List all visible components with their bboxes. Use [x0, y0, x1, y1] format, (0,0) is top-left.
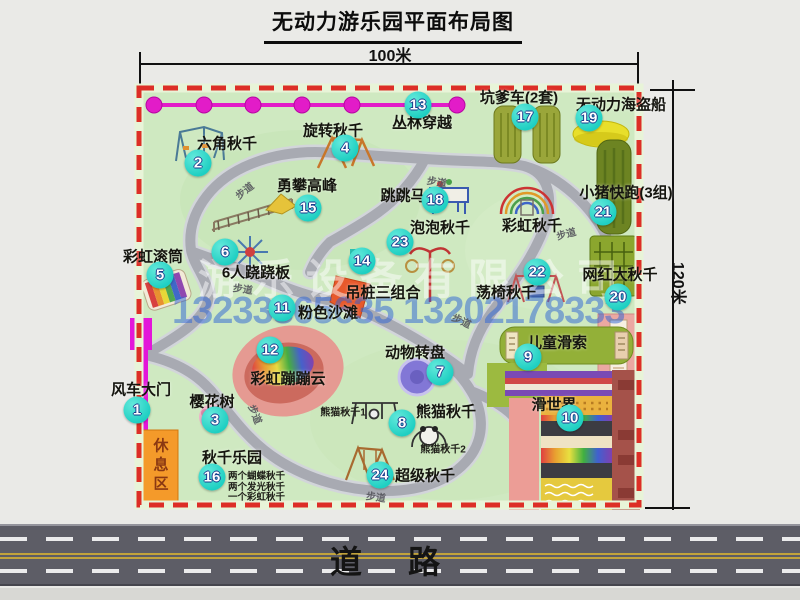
attraction-badge-18: 18	[422, 187, 449, 214]
attraction-label-2: 六角秋千	[197, 133, 257, 154]
attraction-label-15: 勇攀高峰	[277, 175, 337, 196]
attraction-badge-17: 17	[512, 104, 539, 131]
footer-strip	[0, 588, 800, 600]
attraction-badge-15: 15	[295, 195, 322, 222]
extra-label-4: 休息区	[150, 438, 171, 495]
extra-label-1: 彩虹秋千	[502, 215, 562, 236]
attraction-badge-3: 3	[202, 407, 229, 434]
walkway-label-6: 步道	[450, 309, 474, 331]
attraction-badge-14: 14	[349, 248, 376, 275]
attraction-badge-24: 24	[367, 462, 394, 489]
attraction-badge-10: 10	[557, 405, 584, 432]
walkway-label-5: 步道	[245, 402, 266, 426]
road-label: 道路	[330, 537, 486, 583]
road: 道路	[0, 524, 800, 586]
attraction-badge-5: 5	[147, 262, 174, 289]
attraction-badge-23: 23	[387, 229, 414, 256]
extra-label-3: 熊猫秋千2	[420, 441, 466, 456]
attraction-label-21: 小猪快跑(3组)	[579, 182, 672, 203]
attraction-badge-13: 13	[405, 92, 432, 119]
attraction-badge-8: 8	[389, 410, 416, 437]
attraction-badge-9: 9	[515, 344, 542, 371]
labels-overlay: 风车大门1六角秋千2樱花树3旋转秋千4彩虹滚筒56人跷跷板6动物转盘7熊猫秋千8…	[0, 0, 800, 600]
walkway-label-4: 步道	[232, 279, 254, 297]
attraction-label-23: 泡泡秋千	[410, 217, 470, 238]
attraction-label-14: 吊桩三组合	[345, 282, 420, 303]
walkway-label-7: 步道	[365, 487, 387, 505]
attraction-badge-12: 12	[257, 337, 284, 364]
attraction-badge-19: 19	[576, 105, 603, 132]
walkway-label-1: 步道	[232, 178, 257, 202]
attraction-label-8: 熊猫秋千	[416, 401, 476, 422]
attraction-note-16-3: 一个彩虹秋千	[228, 489, 285, 503]
attraction-badge-4: 4	[332, 135, 359, 162]
playground-layout-screenshot: 无动力游乐园平面布局图 100米 120米	[0, 0, 800, 600]
attraction-badge-16: 16	[199, 464, 226, 491]
attraction-badge-7: 7	[427, 359, 454, 386]
attraction-badge-21: 21	[590, 199, 617, 226]
attraction-badge-11: 11	[269, 295, 296, 322]
attraction-badge-6: 6	[212, 239, 239, 266]
attraction-label-24: 超级秋千	[395, 465, 455, 486]
attraction-badge-2: 2	[185, 150, 212, 177]
attraction-badge-1: 1	[124, 397, 151, 424]
attraction-label-18: 跳跳马	[380, 185, 425, 206]
attraction-badge-22: 22	[524, 259, 551, 286]
attraction-label-12: 彩虹蹦蹦云	[250, 368, 325, 389]
attraction-label-6: 6人跷跷板	[222, 262, 290, 283]
attraction-badge-20: 20	[605, 284, 632, 311]
walkway-label-2: 步道	[426, 172, 448, 190]
extra-label-2: 熊猫秋千1	[320, 404, 366, 419]
attraction-label-22: 荡椅秋千	[476, 282, 536, 303]
attraction-label-11: 粉色沙滩	[298, 302, 358, 323]
attraction-label-20: 网红大秋千	[582, 264, 657, 285]
